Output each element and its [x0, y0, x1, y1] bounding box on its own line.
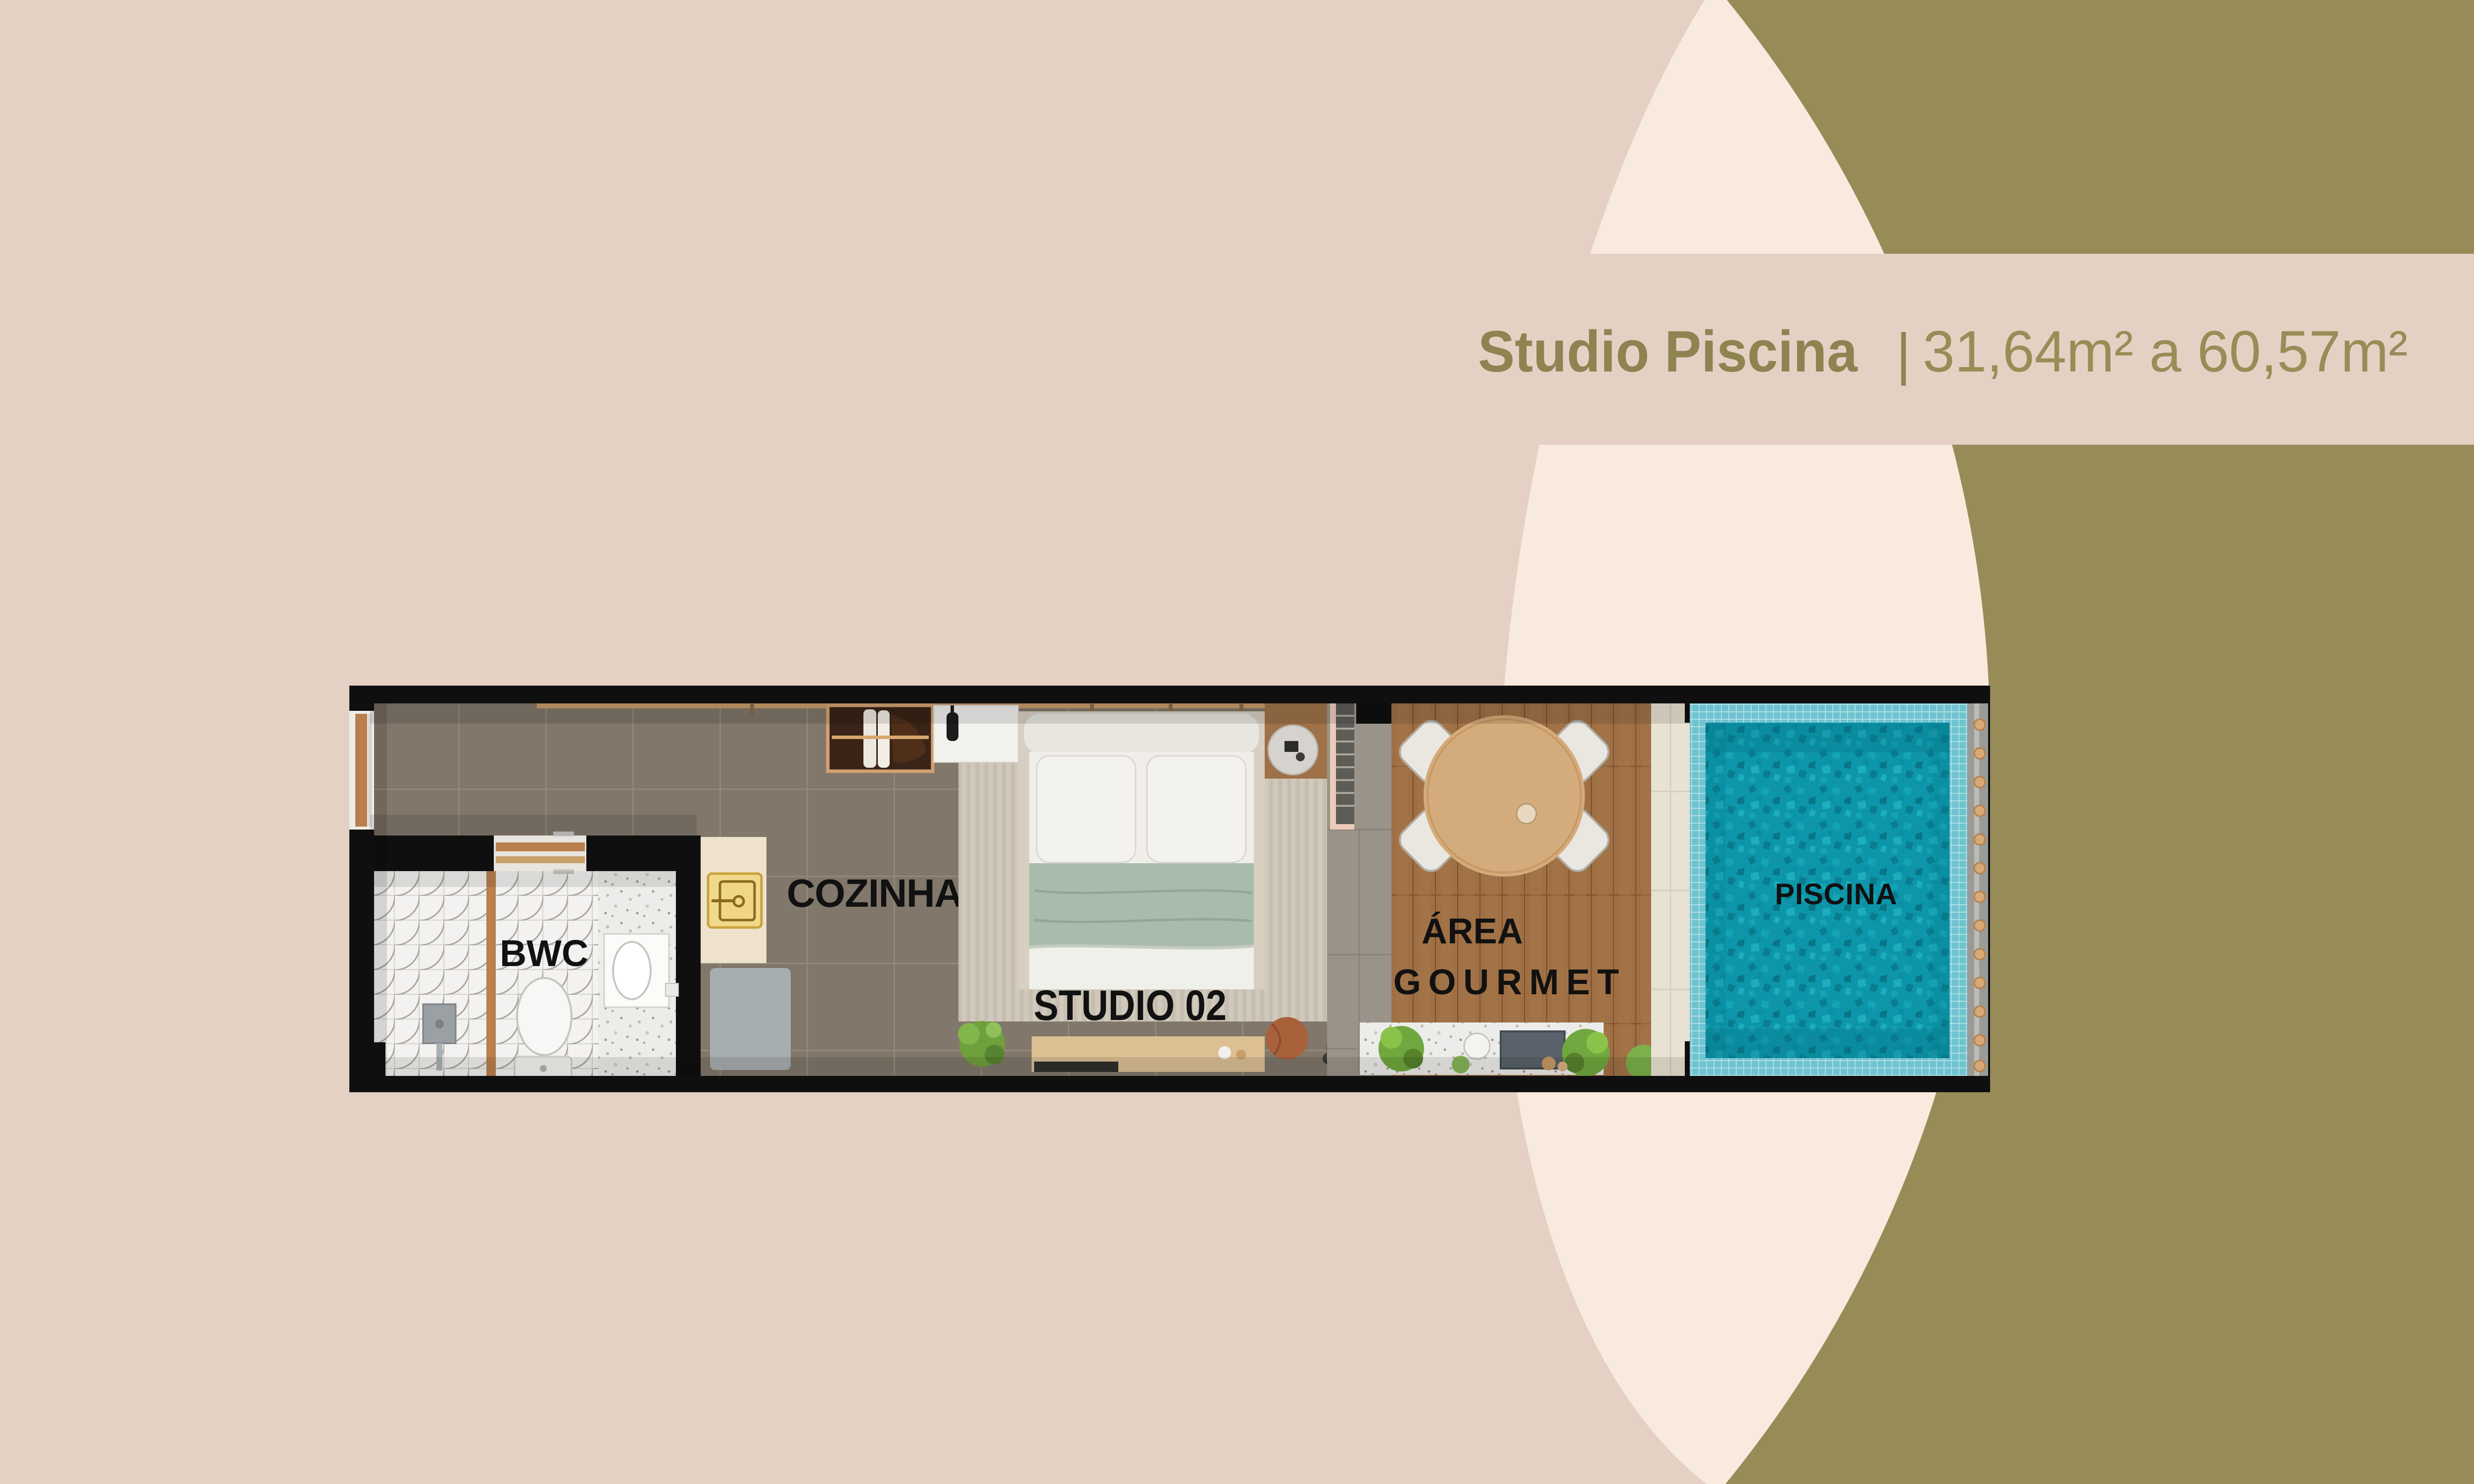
svg-text:31,64m² a 60,57m²: 31,64m² a 60,57m² — [1923, 319, 2408, 384]
svg-text:STUDIO 02: STUDIO 02 — [1034, 982, 1227, 1029]
svg-text:PISCINA: PISCINA — [1775, 878, 1897, 911]
svg-text:COZINHA: COZINHA — [787, 871, 963, 915]
svg-text:ÁREA: ÁREA — [1422, 912, 1523, 951]
svg-text:Studio Piscina: Studio Piscina — [1478, 319, 1858, 384]
svg-text:|: | — [1896, 322, 1911, 386]
svg-text:BWC: BWC — [500, 932, 588, 974]
